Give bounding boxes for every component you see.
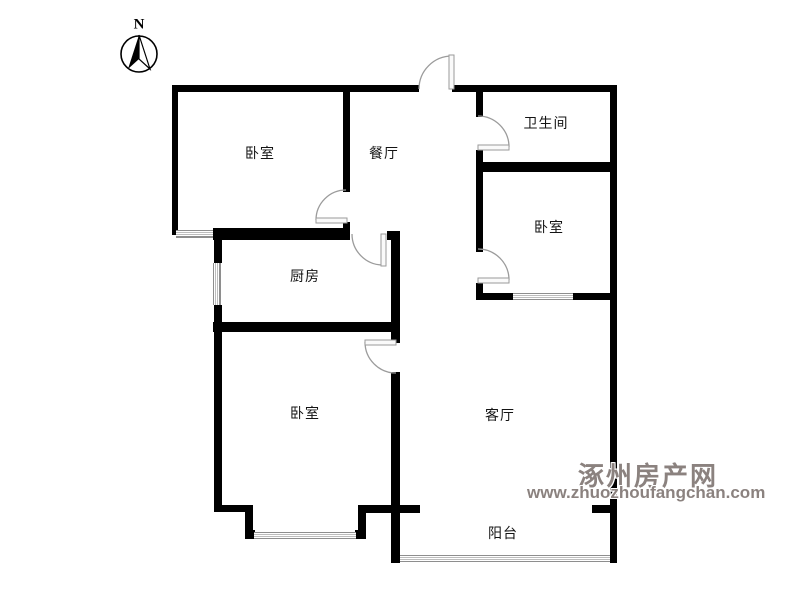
- bathroom-door: [478, 116, 509, 150]
- kitchen-door: [352, 234, 386, 266]
- doors-and-compass-layer: [0, 0, 800, 600]
- floor-plan: N 卧室 餐厅 卫生间 卧室 厨房 卧室 客厅 阳台 涿州房产网 www.zhu…: [0, 0, 800, 600]
- bedroom-northwest-door: [316, 190, 347, 223]
- bedroom-east-door: [478, 249, 509, 283]
- bedroom-southwest-door: [365, 340, 396, 373]
- entrance-door: [419, 55, 454, 89]
- north-compass-icon: [121, 35, 157, 72]
